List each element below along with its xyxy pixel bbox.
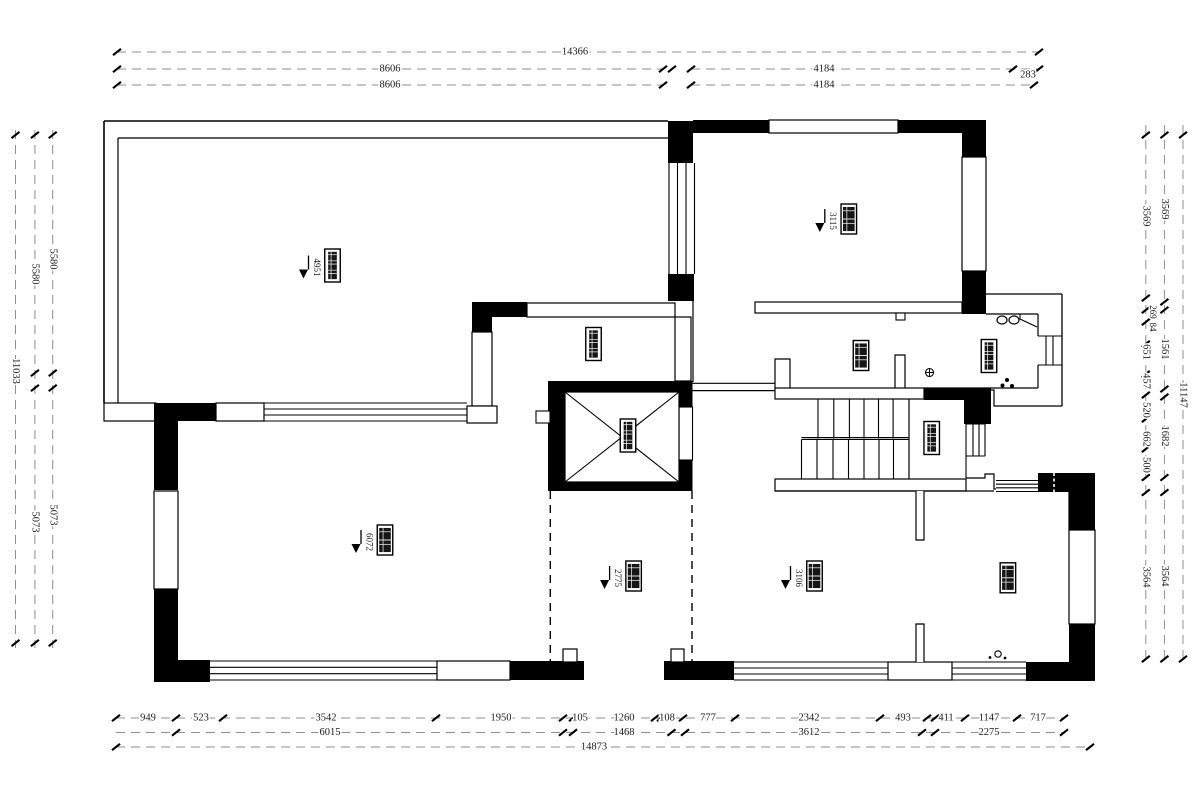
svg-text:6015: 6015	[320, 727, 341, 738]
svg-text:3612: 3612	[799, 727, 820, 738]
svg-text:8606: 8606	[380, 63, 401, 74]
svg-text:662: 662	[1140, 431, 1151, 447]
svg-text:411: 411	[938, 712, 953, 723]
svg-text:1147: 1147	[979, 712, 1000, 723]
svg-text:717: 717	[1030, 712, 1046, 723]
svg-text:14873: 14873	[581, 741, 607, 752]
svg-text:3106: 3106	[794, 569, 804, 588]
svg-text:3569: 3569	[1159, 199, 1170, 220]
svg-text:283: 283	[1020, 69, 1036, 80]
svg-text:108: 108	[659, 712, 675, 723]
svg-text:1468: 1468	[614, 727, 635, 738]
svg-text:523: 523	[193, 712, 209, 723]
svg-text:3564: 3564	[1159, 566, 1170, 588]
svg-text:84: 84	[1148, 323, 1158, 333]
svg-text:4184: 4184	[814, 79, 836, 90]
svg-text:1682: 1682	[1159, 426, 1170, 447]
svg-text:3564: 3564	[1140, 567, 1151, 589]
svg-text:457: 457	[1140, 373, 1151, 389]
svg-text:1950: 1950	[491, 712, 512, 723]
svg-text:3542: 3542	[316, 712, 337, 723]
svg-text:3569: 3569	[1140, 206, 1151, 227]
svg-text:493: 493	[895, 712, 911, 723]
svg-text:5073: 5073	[29, 512, 40, 533]
svg-text:269: 269	[1148, 305, 1158, 319]
svg-text:2342: 2342	[799, 712, 820, 723]
svg-text:4184: 4184	[814, 63, 836, 74]
svg-text:11033: 11033	[10, 358, 21, 384]
svg-text:949: 949	[140, 712, 156, 723]
svg-text:5073: 5073	[47, 505, 58, 526]
svg-text:500: 500	[1140, 457, 1151, 473]
svg-text:4951: 4951	[312, 259, 322, 277]
svg-text:11147: 11147	[1178, 382, 1189, 407]
svg-text:8606: 8606	[380, 79, 401, 90]
svg-text:2275: 2275	[979, 727, 1000, 738]
svg-text:520: 520	[1140, 402, 1151, 418]
svg-text:14366: 14366	[562, 46, 588, 57]
svg-text:651: 651	[1140, 344, 1151, 360]
svg-text:3115: 3115	[828, 212, 838, 230]
svg-text:1561: 1561	[1159, 339, 1170, 360]
svg-text:777: 777	[700, 712, 716, 723]
svg-text:105: 105	[572, 712, 588, 723]
svg-text:6072: 6072	[364, 533, 374, 551]
svg-text:2775: 2775	[613, 569, 623, 588]
svg-text:1260: 1260	[614, 712, 635, 723]
svg-text:5580: 5580	[29, 264, 40, 285]
svg-text:5580: 5580	[47, 249, 58, 270]
